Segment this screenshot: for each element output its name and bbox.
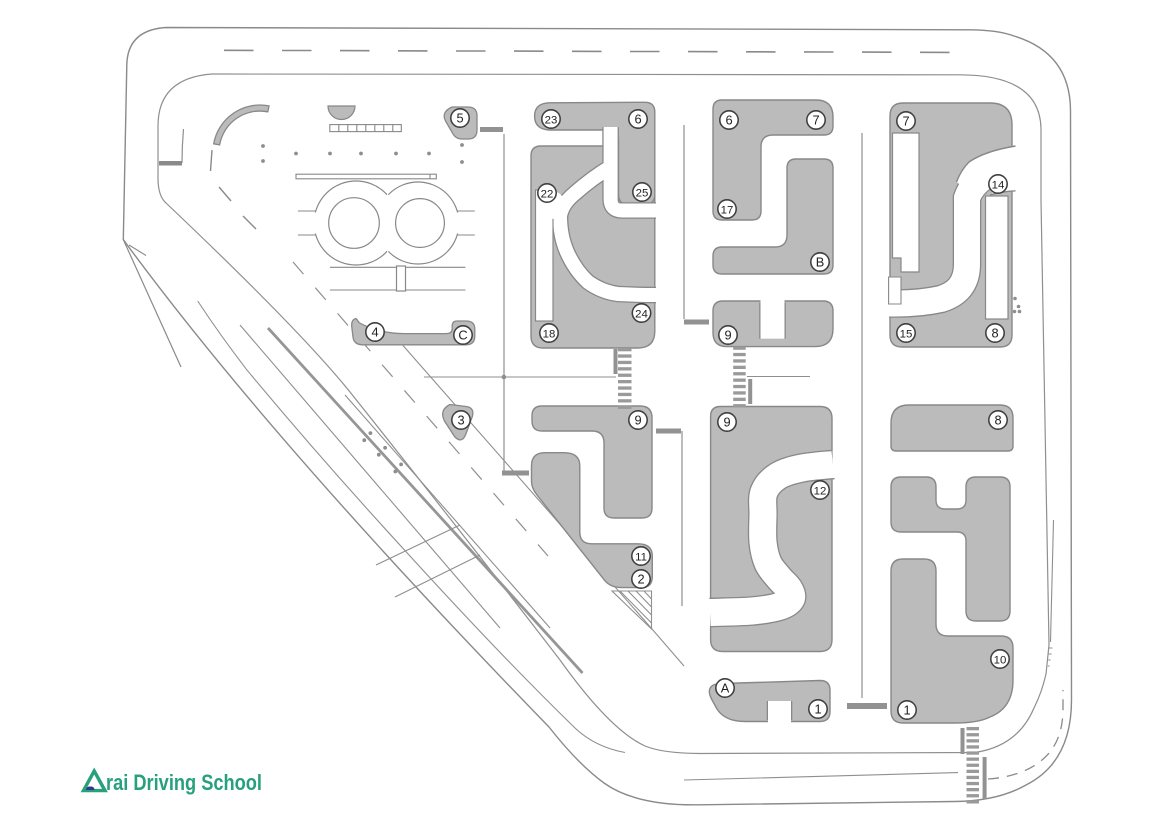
- svg-text:24: 24: [635, 308, 648, 320]
- svg-text:9: 9: [634, 412, 641, 427]
- svg-text:7: 7: [812, 112, 819, 127]
- svg-text:5: 5: [456, 110, 463, 125]
- svg-text:6: 6: [634, 111, 641, 126]
- svg-text:1: 1: [814, 701, 821, 716]
- svg-text:1: 1: [903, 702, 910, 717]
- svg-text:8: 8: [991, 325, 998, 340]
- svg-text:23: 23: [545, 114, 558, 126]
- svg-text:3: 3: [457, 412, 464, 427]
- svg-text:A: A: [721, 680, 730, 695]
- svg-text:14: 14: [992, 179, 1005, 191]
- svg-text:7: 7: [902, 113, 909, 128]
- svg-text:9: 9: [723, 414, 730, 429]
- svg-text:18: 18: [543, 328, 556, 340]
- svg-text:11: 11: [635, 551, 647, 563]
- svg-text:C: C: [458, 327, 467, 342]
- svg-text:6: 6: [725, 112, 732, 127]
- svg-text:9: 9: [724, 327, 731, 342]
- svg-text:8: 8: [994, 412, 1001, 427]
- svg-text:22: 22: [541, 188, 554, 200]
- svg-text:10: 10: [994, 654, 1007, 666]
- svg-text:12: 12: [814, 485, 827, 497]
- svg-text:4: 4: [371, 324, 378, 339]
- svg-text:17: 17: [721, 204, 734, 216]
- svg-text:15: 15: [900, 328, 913, 340]
- svg-text:25: 25: [636, 187, 649, 199]
- svg-text:2: 2: [637, 571, 644, 586]
- svg-text:rai Driving School: rai Driving School: [106, 770, 262, 795]
- svg-text:B: B: [816, 254, 825, 269]
